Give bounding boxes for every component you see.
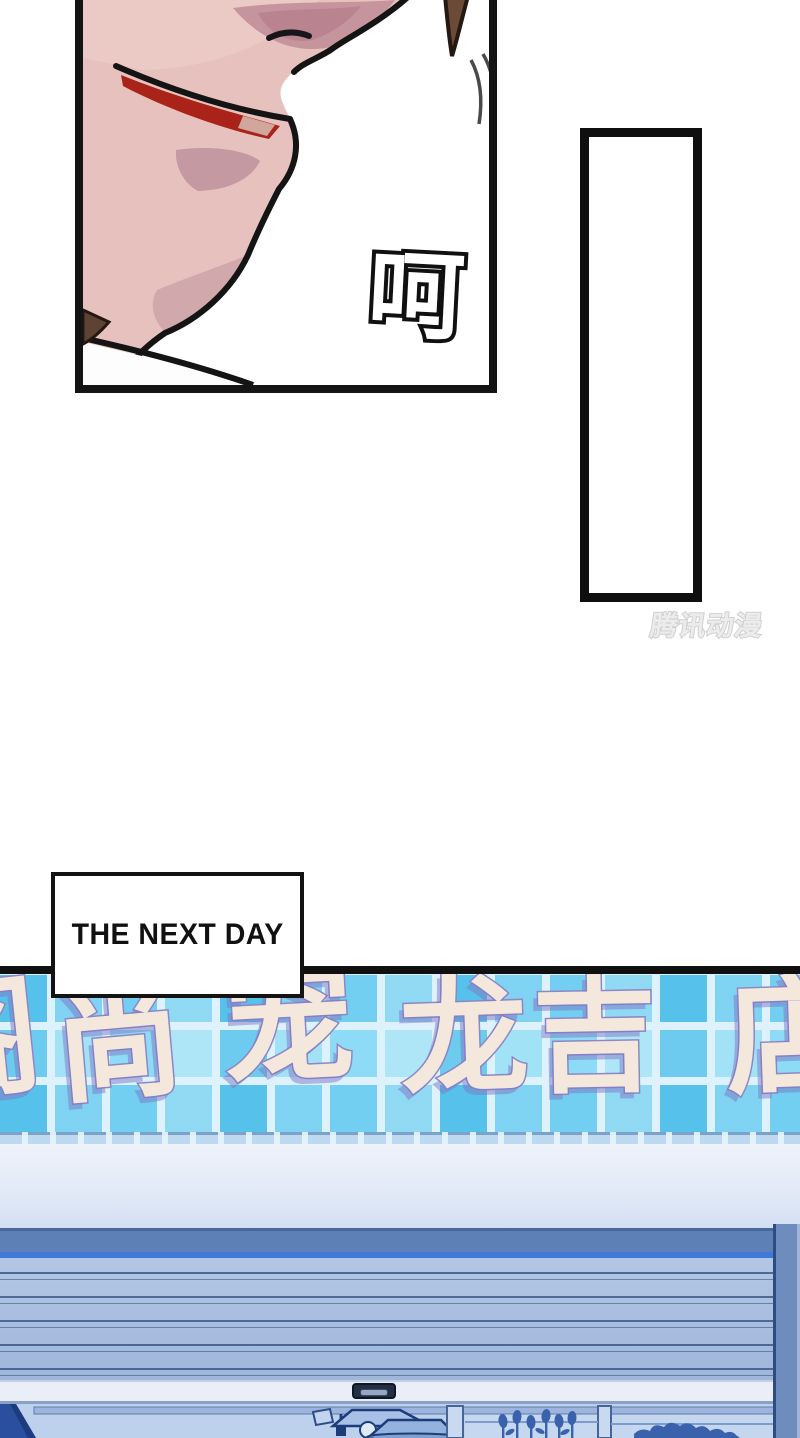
storefront-scene: 阁 尚 宠 龙 吉 店 (0, 974, 800, 1438)
empty-vertical-panel (580, 128, 702, 602)
sign-character: 龙 (398, 974, 530, 1104)
shutter-handle (352, 1383, 396, 1399)
sign-character: 吉 (532, 975, 658, 1101)
shutter-bottom-bar (0, 1380, 782, 1404)
tencent-comics-watermark: 腾讯动漫 (648, 604, 765, 643)
caption-text: THE NEXT DAY (71, 918, 283, 952)
sfx-laugh-text: 呵 (366, 246, 467, 347)
caption-box: THE NEXT DAY (51, 872, 304, 998)
shutter-housing (0, 1228, 800, 1254)
sign-character: 店 (724, 974, 800, 1104)
roller-shutter (0, 1258, 778, 1382)
storefront-right-frame (773, 1224, 797, 1438)
sign-character: 阁 (0, 974, 46, 1112)
tile-wall-edge (0, 1132, 800, 1144)
shop-interior (0, 1404, 800, 1438)
shop-interior-art (0, 1404, 800, 1438)
awning-fascia (0, 1144, 800, 1228)
face-closeup-panel: 呵 (75, 0, 497, 393)
manga-page: 呵 腾讯动漫 阁 尚 宠 龙 吉 店 (0, 0, 800, 1438)
shutter-handle-slot (360, 1389, 388, 1396)
